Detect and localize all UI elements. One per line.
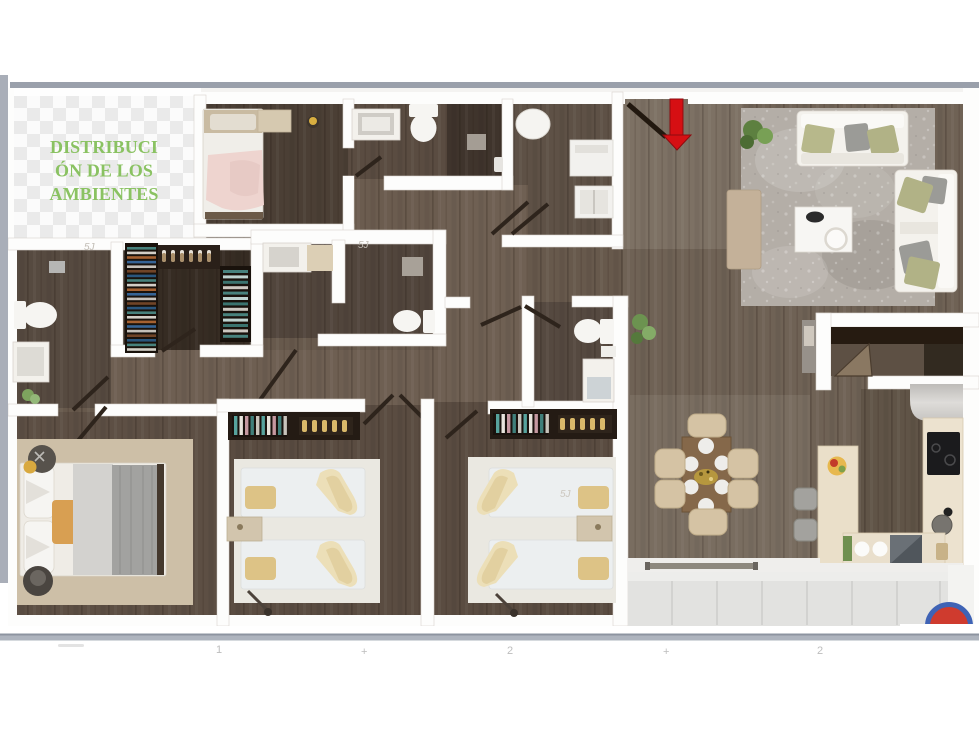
svg-text:ÓN DE LOS: ÓN DE LOS [55, 160, 153, 181]
svg-text:2: 2 [507, 645, 513, 657]
svg-text:5J: 5J [358, 240, 370, 251]
svg-text:+: + [663, 646, 669, 658]
svg-text:2: 2 [817, 645, 823, 657]
svg-text:5J: 5J [560, 489, 572, 500]
svg-text:5J: 5J [84, 242, 96, 253]
svg-text:DISTRIBUCI: DISTRIBUCI [50, 137, 158, 157]
svg-text:AMBIENTES: AMBIENTES [50, 184, 159, 204]
svg-text:1: 1 [216, 644, 222, 656]
svg-text:+: + [361, 646, 367, 658]
